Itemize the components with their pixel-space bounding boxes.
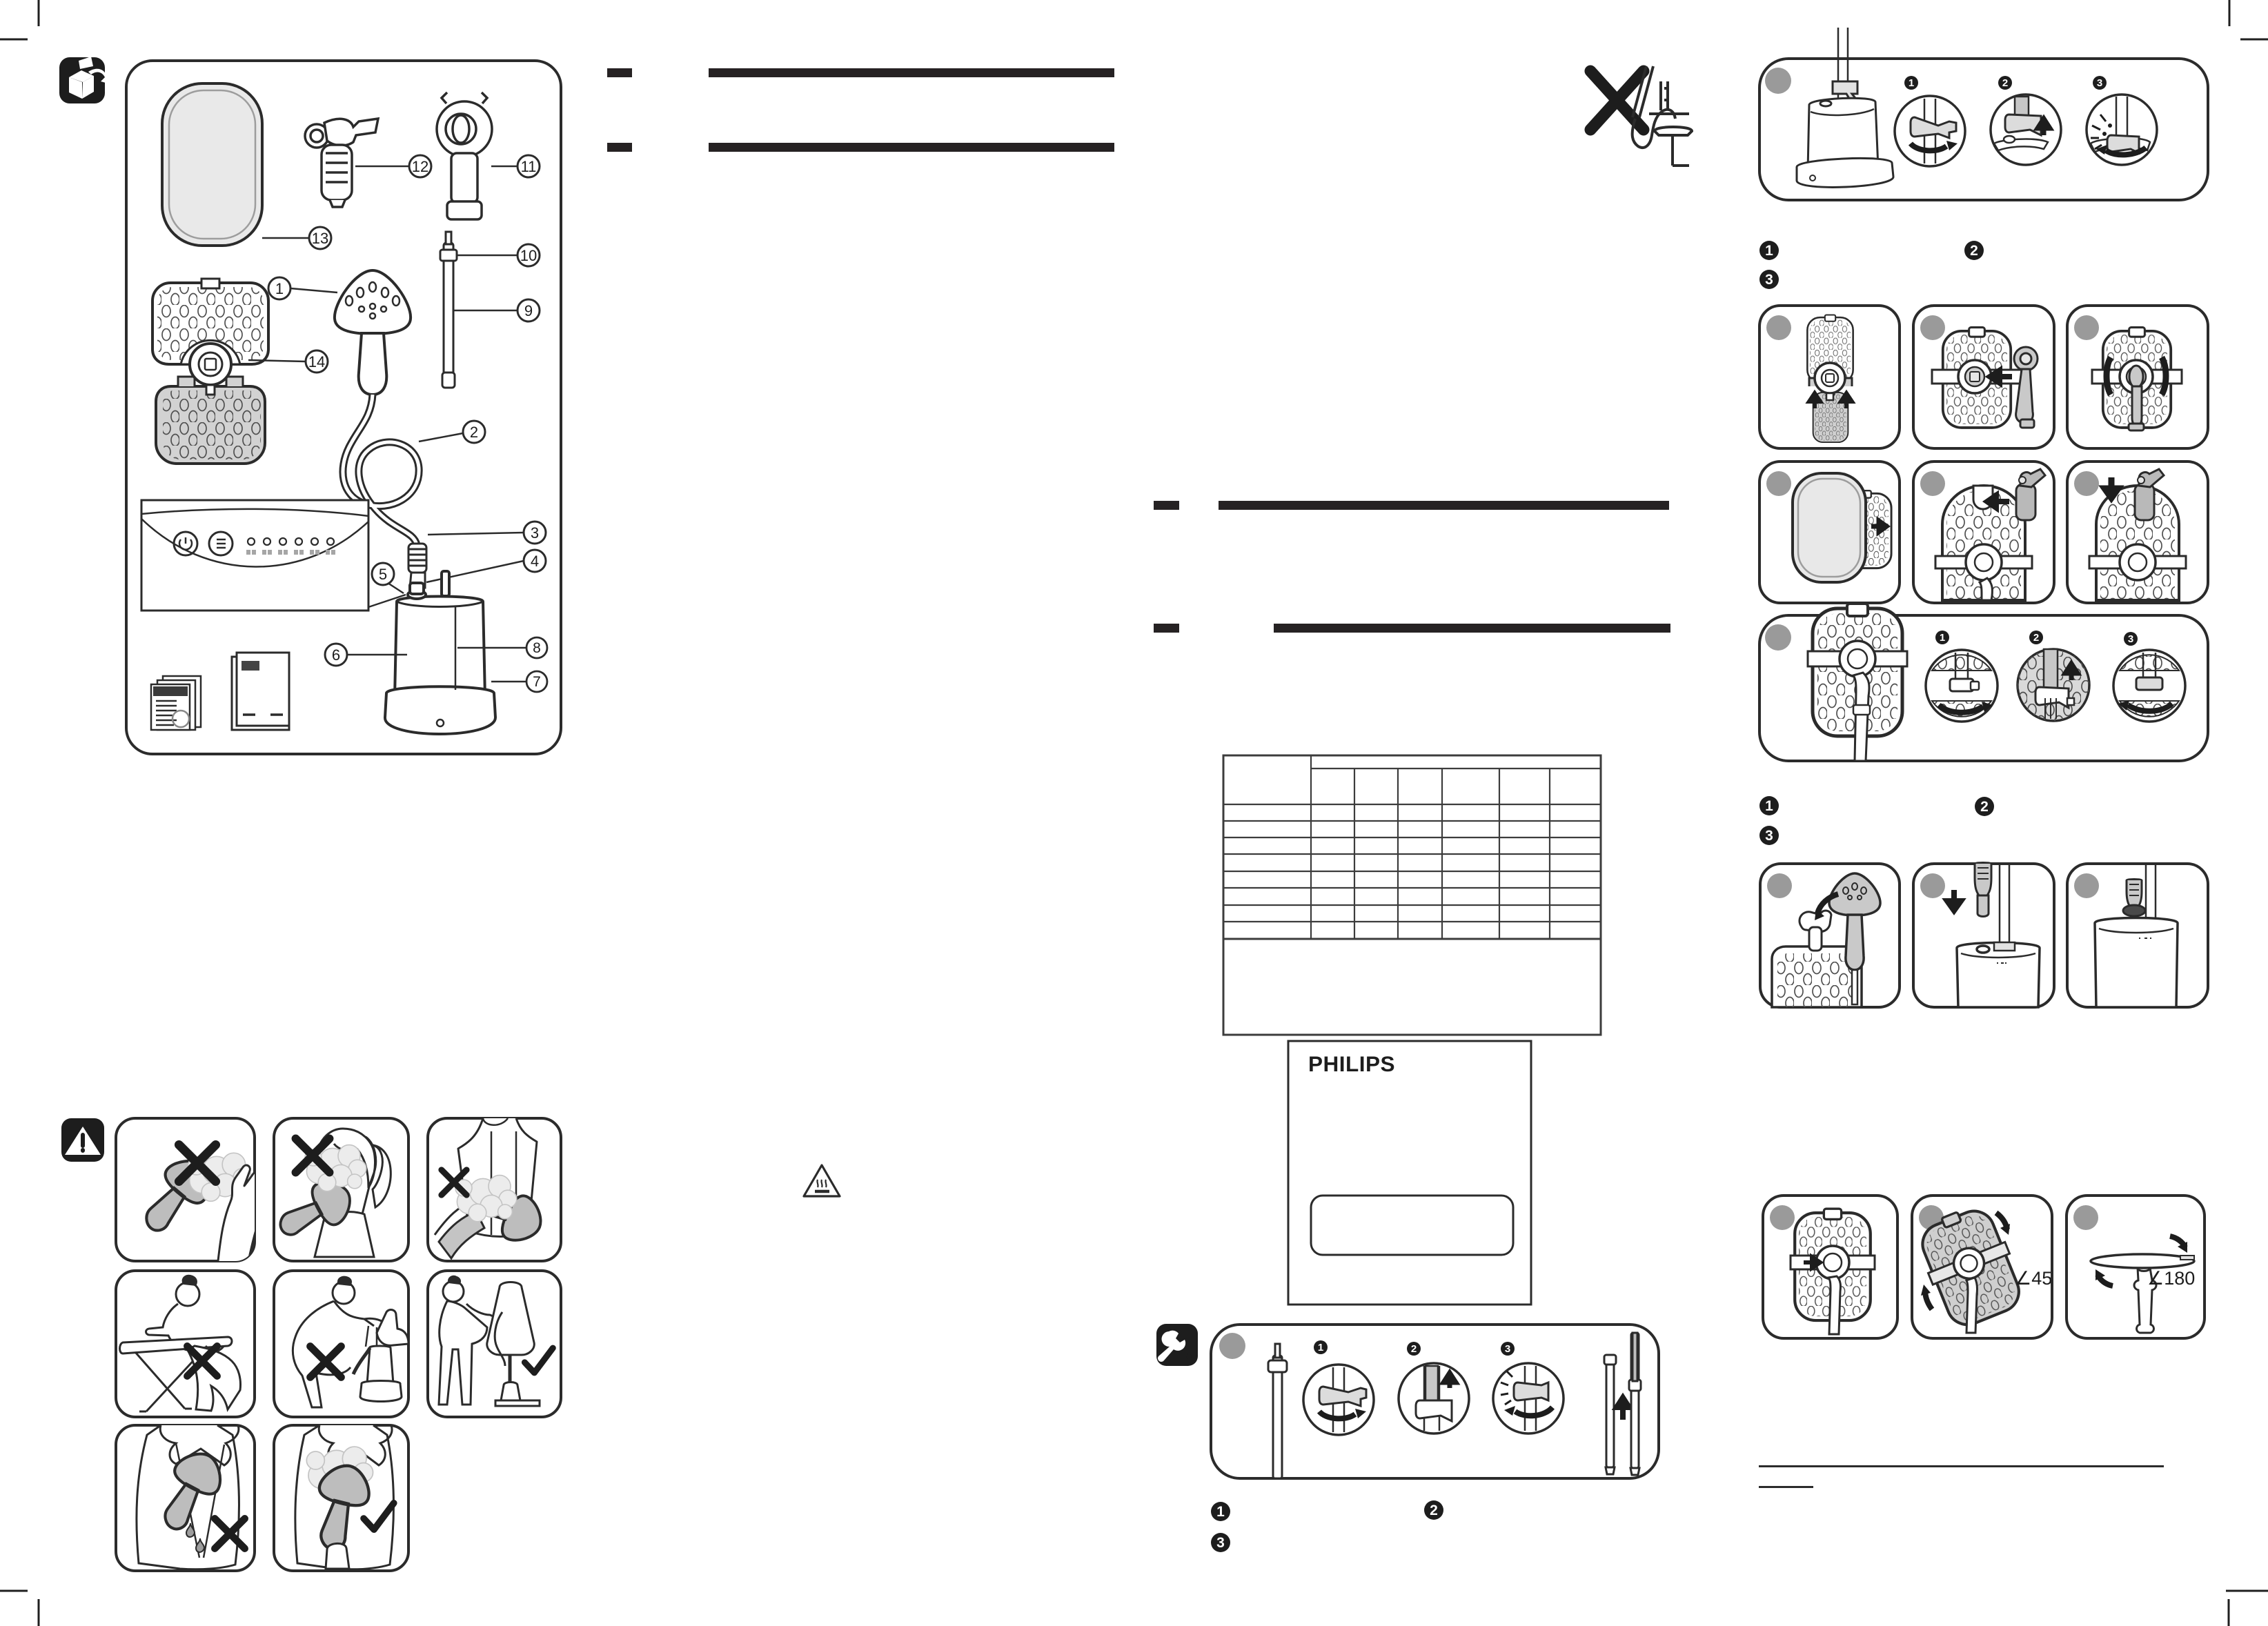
svg-text:2: 2 bbox=[1970, 243, 1978, 259]
svg-text:1: 1 bbox=[275, 280, 284, 297]
svg-text:1: 1 bbox=[1765, 798, 1773, 814]
svg-text:3: 3 bbox=[531, 524, 539, 542]
svg-text:∠45: ∠45 bbox=[2015, 1268, 2052, 1289]
svg-text:∠180: ∠180 bbox=[2147, 1268, 2195, 1289]
svg-text:8: 8 bbox=[533, 640, 541, 656]
svg-text:12: 12 bbox=[412, 158, 428, 175]
svg-text:2: 2 bbox=[1430, 1503, 1438, 1518]
svg-text:9: 9 bbox=[524, 302, 533, 319]
svg-text:2: 2 bbox=[1980, 799, 1989, 815]
svg-text:11: 11 bbox=[521, 158, 537, 175]
svg-text:1: 1 bbox=[1216, 1504, 1225, 1520]
svg-text:1: 1 bbox=[1909, 77, 1914, 89]
svg-text:2: 2 bbox=[470, 424, 478, 441]
svg-text:PHILIPS: PHILIPS bbox=[1308, 1051, 1395, 1076]
svg-text:2: 2 bbox=[2002, 77, 2008, 89]
svg-text:2: 2 bbox=[1411, 1343, 1417, 1355]
svg-text:10: 10 bbox=[520, 247, 537, 264]
svg-text:13: 13 bbox=[312, 230, 328, 247]
svg-text:2: 2 bbox=[2033, 632, 2039, 644]
svg-text:3: 3 bbox=[1765, 828, 1773, 844]
svg-text:3: 3 bbox=[2097, 77, 2102, 89]
svg-text:5: 5 bbox=[379, 566, 387, 583]
svg-text:3: 3 bbox=[1505, 1343, 1510, 1355]
svg-text:1: 1 bbox=[1765, 243, 1773, 259]
svg-text:14: 14 bbox=[308, 353, 325, 370]
svg-text:3: 3 bbox=[1216, 1535, 1225, 1551]
svg-text:1: 1 bbox=[1940, 632, 1945, 644]
svg-text:3: 3 bbox=[2128, 633, 2133, 645]
svg-text:7: 7 bbox=[533, 674, 541, 690]
svg-text:6: 6 bbox=[332, 646, 340, 664]
svg-text:4: 4 bbox=[531, 553, 539, 570]
svg-text:3: 3 bbox=[1765, 272, 1773, 288]
svg-text:1: 1 bbox=[1318, 1342, 1323, 1354]
